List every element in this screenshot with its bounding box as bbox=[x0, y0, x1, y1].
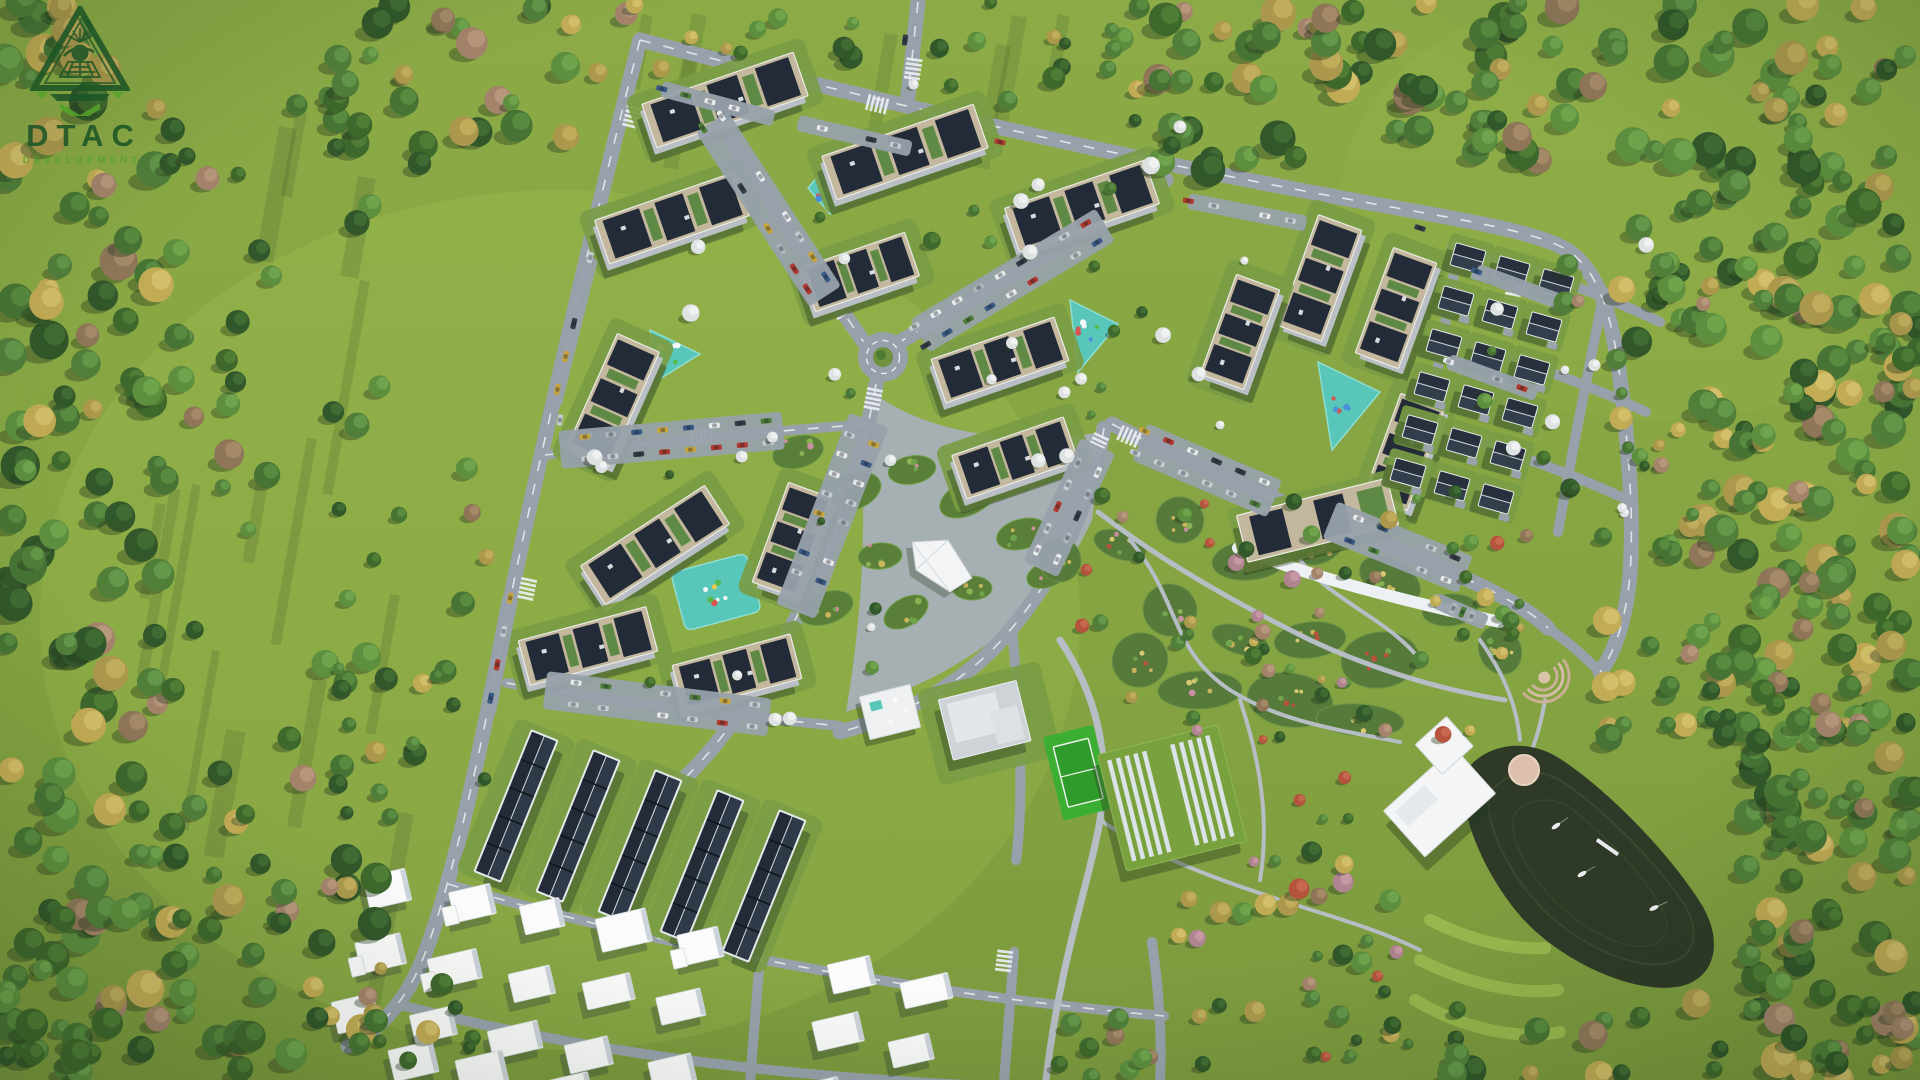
vignette bbox=[0, 0, 1920, 1080]
dtac-logo-mark bbox=[30, 6, 130, 116]
base-bar bbox=[50, 94, 110, 101]
aerial-masterplan-render: DTAC DEVELOPMENT bbox=[0, 0, 1920, 1080]
chevron bbox=[60, 103, 100, 116]
field-grid-icon bbox=[60, 62, 100, 77]
corner-tick bbox=[36, 92, 48, 99]
logo-subtitle: DEVELOPMENT bbox=[19, 155, 142, 166]
scene-svg bbox=[0, 0, 1920, 1080]
logo-title: DTAC bbox=[18, 118, 142, 154]
dtac-logo: DTAC DEVELOPMENT bbox=[14, 6, 146, 166]
corner-tick bbox=[112, 92, 124, 99]
